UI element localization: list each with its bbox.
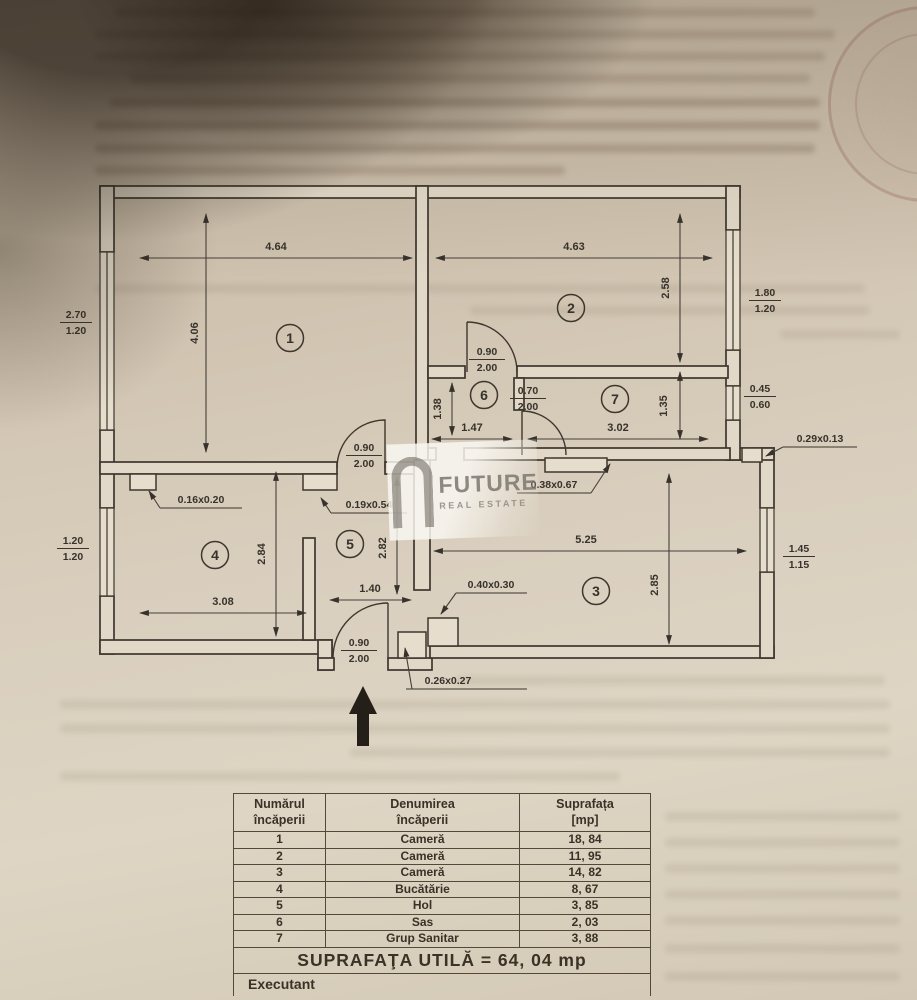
table-row: 5Hol3, 85 [234, 898, 651, 915]
door-label-bath-a: 0.70 [518, 385, 539, 397]
room-table: Numărulîncăperii Denumireaîncăperii Supr… [233, 793, 650, 996]
watermark-title: FUTURE [438, 468, 538, 498]
dim-room3-height: 2.85 [649, 574, 661, 595]
dim-room1-height: 4.06 [189, 322, 201, 343]
round-stamp-inner-ring [855, 33, 917, 175]
walls [100, 186, 774, 670]
window-label-room3-a: 1.45 [789, 543, 810, 555]
room-number-3: 3 [592, 583, 600, 599]
room-number-6: 6 [480, 387, 488, 403]
window-room3 [760, 508, 774, 572]
window-label-room4-a: 1.20 [63, 535, 84, 547]
window-label-room7-a: 0.45 [750, 383, 771, 395]
door-arc-entry [333, 603, 388, 658]
note-0-19x0-54: 0.19x0.54 [346, 499, 393, 511]
table-row: 4Bucătărie8, 67 [234, 881, 651, 898]
table-row: 3Cameră14, 82 [234, 865, 651, 882]
window-room1 [100, 252, 114, 430]
room-number-7: 7 [611, 391, 619, 407]
dim-room4-height: 2.84 [256, 542, 268, 564]
header-room-number: Numărulîncăperii [234, 794, 326, 832]
door-label-room1-a: 0.90 [354, 442, 375, 454]
watermark-subtitle: REAL ESTATE [439, 497, 539, 510]
dim-room5-width: 1.40 [359, 583, 380, 595]
north-arrow-icon [349, 686, 377, 746]
dim-room5-height: 2.82 [377, 537, 389, 558]
dim-room1-width: 4.64 [265, 241, 287, 253]
table-row: 2Cameră11, 95 [234, 848, 651, 865]
dim-room7-height: 1.35 [658, 395, 670, 416]
table-footer-row: Executant [234, 973, 651, 996]
dim-room2-height: 2.58 [660, 277, 672, 298]
window-room7 [726, 386, 740, 420]
window-label-room1-a: 2.70 [66, 309, 87, 321]
room-number-5: 5 [346, 536, 354, 552]
window-room4 [100, 508, 114, 596]
dim-room7-width: 3.02 [607, 422, 628, 434]
table-total-row: SUPRAFAŢA UTILĂ = 64, 04 mp [234, 947, 651, 973]
executant-label: Executant [234, 973, 651, 996]
dim-room6-height: 1.38 [432, 398, 444, 419]
table-header-row: Numărulîncăperii Denumireaîncăperii Supr… [234, 794, 651, 832]
window-label-room2-b: 1.20 [755, 303, 776, 315]
door-label-entry-a: 0.90 [349, 637, 370, 649]
dim-room6-width: 1.47 [461, 422, 482, 434]
header-area: Suprafața[mp] [520, 794, 651, 832]
total-area: SUPRAFAŢA UTILĂ = 64, 04 mp [234, 947, 651, 973]
table-row: 7Grup Sanitar3, 88 [234, 931, 651, 948]
room-number-1: 1 [286, 330, 294, 346]
room-number-2: 2 [567, 300, 575, 316]
note-0-40x0-30: 0.40x0.30 [468, 579, 515, 591]
scanned-floorplan-page: { "watermark": { "title": "FUTURE", "sub… [0, 0, 917, 1000]
window-room2 [726, 230, 740, 350]
dim-room3-width: 5.25 [575, 534, 596, 546]
watermark: FUTURE REAL ESTATE [386, 439, 539, 540]
note-0-26x0-27: 0.26x0.27 [425, 675, 472, 687]
dim-room4-width: 3.08 [212, 596, 233, 608]
door-label-room2-b: 2.00 [477, 362, 498, 374]
door-label-entry-b: 2.00 [349, 653, 370, 665]
room-number-4: 4 [211, 547, 219, 563]
note-0-16x0-20: 0.16x0.20 [178, 494, 225, 506]
note-0-29x0-13: 0.29x0.13 [797, 433, 844, 445]
door-label-room1-b: 2.00 [354, 458, 375, 470]
door-label-bath-b: 2.00 [518, 401, 539, 413]
header-room-name: Denumireaîncăperii [326, 794, 520, 832]
table-row: 6Sas2, 03 [234, 914, 651, 931]
table-row: 1Cameră18, 84 [234, 832, 651, 849]
watermark-logo-icon [391, 456, 434, 528]
door-label-room2-a: 0.90 [477, 346, 498, 358]
dim-room2-width: 4.63 [563, 241, 584, 253]
window-label-room4-b: 1.20 [63, 551, 84, 563]
window-label-room3-b: 1.15 [789, 559, 810, 571]
window-label-room7-b: 0.60 [750, 399, 771, 411]
window-label-room2-a: 1.80 [755, 287, 776, 299]
window-label-room1-b: 1.20 [66, 325, 87, 337]
